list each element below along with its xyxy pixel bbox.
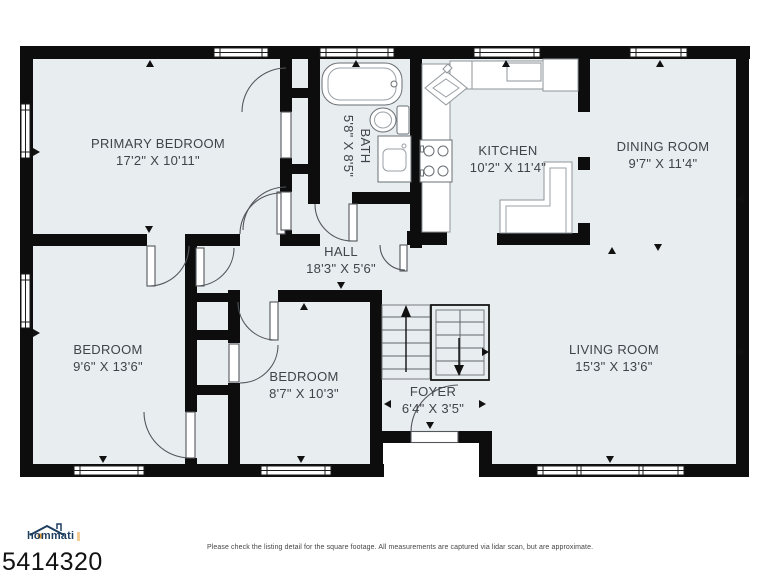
room-label-bedroom-2: BEDROOM 8'7" X 10'3"	[269, 369, 339, 403]
room-label-primary-bedroom: PRIMARY BEDROOM 17'2" X 10'11"	[91, 136, 225, 170]
kitchen-counter-top	[450, 61, 543, 89]
window-icon	[537, 466, 684, 475]
room-name: HALL	[306, 244, 376, 261]
window-icon	[320, 48, 394, 57]
window-icon	[74, 466, 144, 475]
room-dimensions: 5'8" X 8'5"	[339, 115, 356, 177]
room-name: BATH	[356, 115, 373, 177]
window-icon	[21, 104, 30, 158]
listing-id: 5414320	[2, 548, 103, 576]
floorplan-page: PRIMARY BEDROOM 17'2" X 10'11" BATH 5'8"…	[0, 0, 768, 576]
bathtub-icon	[322, 63, 402, 105]
room-name: DINING ROOM	[617, 139, 710, 156]
room-name: BEDROOM	[269, 369, 339, 386]
window-icon	[474, 48, 540, 57]
room-dimensions: 8'7" X 10'3"	[269, 386, 339, 403]
room-dimensions: 10'2" X 11'4"	[470, 160, 546, 177]
room-dimensions: 9'7" X 11'4"	[617, 156, 710, 173]
window-icon	[21, 274, 30, 328]
floorplan-drawing	[0, 0, 768, 576]
room-dimensions: 17'2" X 10'11"	[91, 153, 225, 170]
room-dimensions: 6'4" X 3'5"	[402, 401, 464, 418]
room-label-dining-room: DINING ROOM 9'7" X 11'4"	[617, 139, 710, 173]
room-dimensions: 9'6" X 13'6"	[73, 359, 143, 376]
room-label-foyer: FOYER 6'4" X 3'5"	[402, 384, 464, 418]
room-label-kitchen: KITCHEN 10'2" X 11'4"	[470, 143, 546, 177]
window-icon	[261, 466, 331, 475]
refrigerator-icon	[543, 59, 578, 91]
window-icon	[214, 48, 268, 57]
hommati-logo: hommati	[26, 522, 86, 546]
logo-text: hommati	[27, 530, 74, 542]
vanity-sink-icon	[378, 136, 411, 182]
disclaimer-text: Please check the listing detail for the …	[207, 544, 593, 551]
room-name: KITCHEN	[470, 143, 546, 160]
room-name: LIVING ROOM	[569, 342, 659, 359]
window-icon	[630, 48, 687, 57]
room-label-bedroom-1: BEDROOM 9'6" X 13'6"	[73, 342, 143, 376]
room-name: FOYER	[402, 384, 464, 401]
room-dimensions: 18'3" X 5'6"	[306, 261, 376, 278]
room-dimensions: 15'3" X 13'6"	[569, 359, 659, 376]
room-label-bath: BATH 5'8" X 8'5"	[339, 115, 373, 177]
room-label-living-room: LIVING ROOM 15'3" X 13'6"	[569, 342, 659, 376]
range-stove-icon	[420, 140, 452, 182]
room-label-hall: HALL 18'3" X 5'6"	[306, 244, 376, 278]
room-name: BEDROOM	[73, 342, 143, 359]
room-name: PRIMARY BEDROOM	[91, 136, 225, 153]
toilet-icon	[370, 106, 409, 134]
logo-accent-mark	[77, 532, 80, 541]
